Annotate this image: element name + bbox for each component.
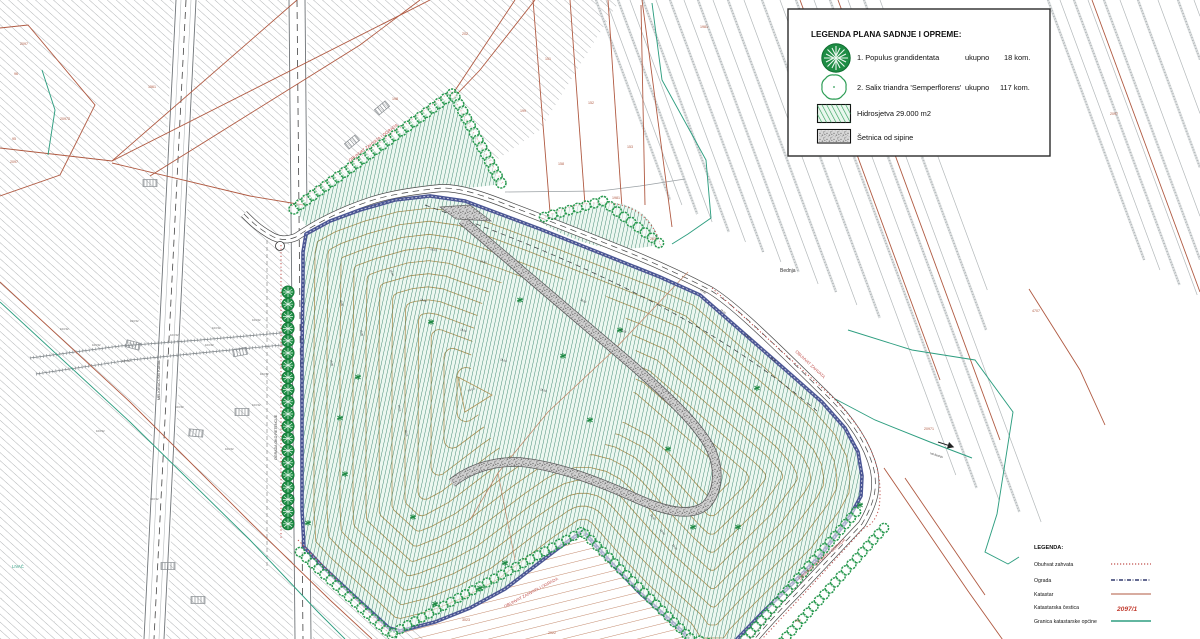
svg-text:103.52: 103.52 — [205, 343, 214, 347]
svg-text:4707: 4707 — [1032, 309, 1040, 313]
svg-text:96: 96 — [14, 72, 18, 76]
svg-text:1561: 1561 — [148, 85, 156, 89]
svg-text:2022: 2022 — [548, 631, 556, 635]
svg-text:103.52: 103.52 — [252, 318, 261, 322]
svg-text:MELIORACIJSKI KANAL: MELIORACIJSKI KANAL — [157, 360, 161, 400]
svg-text:103.52: 103.52 — [150, 497, 159, 501]
svg-text:103.52: 103.52 — [260, 372, 269, 376]
svg-text:1981: 1981 — [612, 196, 620, 200]
svg-text:20972: 20972 — [60, 117, 70, 121]
svg-text:202: 202 — [795, 619, 801, 623]
svg-text:1981: 1981 — [700, 25, 708, 29]
svg-text:LEGENDA:: LEGENDA: — [1034, 545, 1063, 551]
svg-text:Granica katastarske općine: Granica katastarske općine — [1034, 619, 1097, 625]
svg-text:103.52: 103.52 — [92, 343, 101, 347]
svg-text:103.52: 103.52 — [96, 429, 105, 433]
svg-text:ukupno: ukupno — [965, 83, 989, 92]
svg-text:Šetnica od sipine: Šetnica od sipine — [857, 133, 913, 142]
svg-text:20971: 20971 — [924, 427, 934, 431]
svg-text:198: 198 — [392, 97, 398, 101]
svg-text:158: 158 — [558, 162, 564, 166]
svg-text:103.52: 103.52 — [122, 359, 131, 363]
svg-text:3023: 3023 — [462, 618, 470, 622]
svg-text:151: 151 — [545, 57, 551, 61]
svg-text:2097: 2097 — [10, 160, 18, 164]
svg-text:153: 153 — [627, 145, 633, 149]
svg-text:2097/1: 2097/1 — [1116, 606, 1138, 613]
svg-text:Katastar: Katastar — [1034, 592, 1054, 598]
svg-text:2097: 2097 — [20, 42, 28, 46]
svg-text:103.52: 103.52 — [60, 327, 69, 331]
svg-text:103.52: 103.52 — [252, 403, 261, 407]
svg-text:103.52: 103.52 — [170, 333, 179, 337]
svg-text:103.52: 103.52 — [225, 447, 234, 451]
svg-text:Obuhvat zahvata: Obuhvat zahvata — [1034, 562, 1073, 568]
svg-text:ukupno: ukupno — [965, 53, 989, 62]
svg-text:Ograda: Ograda — [1034, 578, 1051, 584]
svg-text:117 kom.: 117 kom. — [1000, 83, 1030, 92]
svg-text:2. Salix triandra 'Semperflore: 2. Salix triandra 'Semperflorens' — [857, 83, 962, 92]
svg-text:LIVAČ: LIVAČ — [12, 564, 24, 569]
svg-text:199: 199 — [520, 109, 526, 113]
svg-text:152: 152 — [588, 101, 594, 105]
svg-text:1. Populus grandidentata: 1. Populus grandidentata — [857, 53, 940, 62]
svg-text:2097: 2097 — [1110, 112, 1118, 116]
svg-text:OGRADA OKO RETENCIJE: OGRADA OKO RETENCIJE — [274, 414, 278, 460]
svg-text:103.52: 103.52 — [130, 319, 139, 323]
svg-text:Hidrosjetva 29.000 m2: Hidrosjetva 29.000 m2 — [857, 109, 931, 118]
svg-text:18 kom.: 18 kom. — [1004, 53, 1030, 62]
svg-text:202: 202 — [462, 32, 468, 36]
svg-text:Katastarska čestica: Katastarska čestica — [1034, 605, 1079, 611]
svg-text:103.52: 103.52 — [212, 326, 221, 330]
svg-text:Bednja: Bednja — [780, 268, 796, 274]
svg-text:203: 203 — [650, 237, 656, 241]
svg-text:LEGENDA PLANA SADNJE I OPREME:: LEGENDA PLANA SADNJE I OPREME: — [811, 30, 961, 39]
svg-text:103.52: 103.52 — [175, 405, 184, 409]
svg-text:95: 95 — [12, 137, 16, 141]
